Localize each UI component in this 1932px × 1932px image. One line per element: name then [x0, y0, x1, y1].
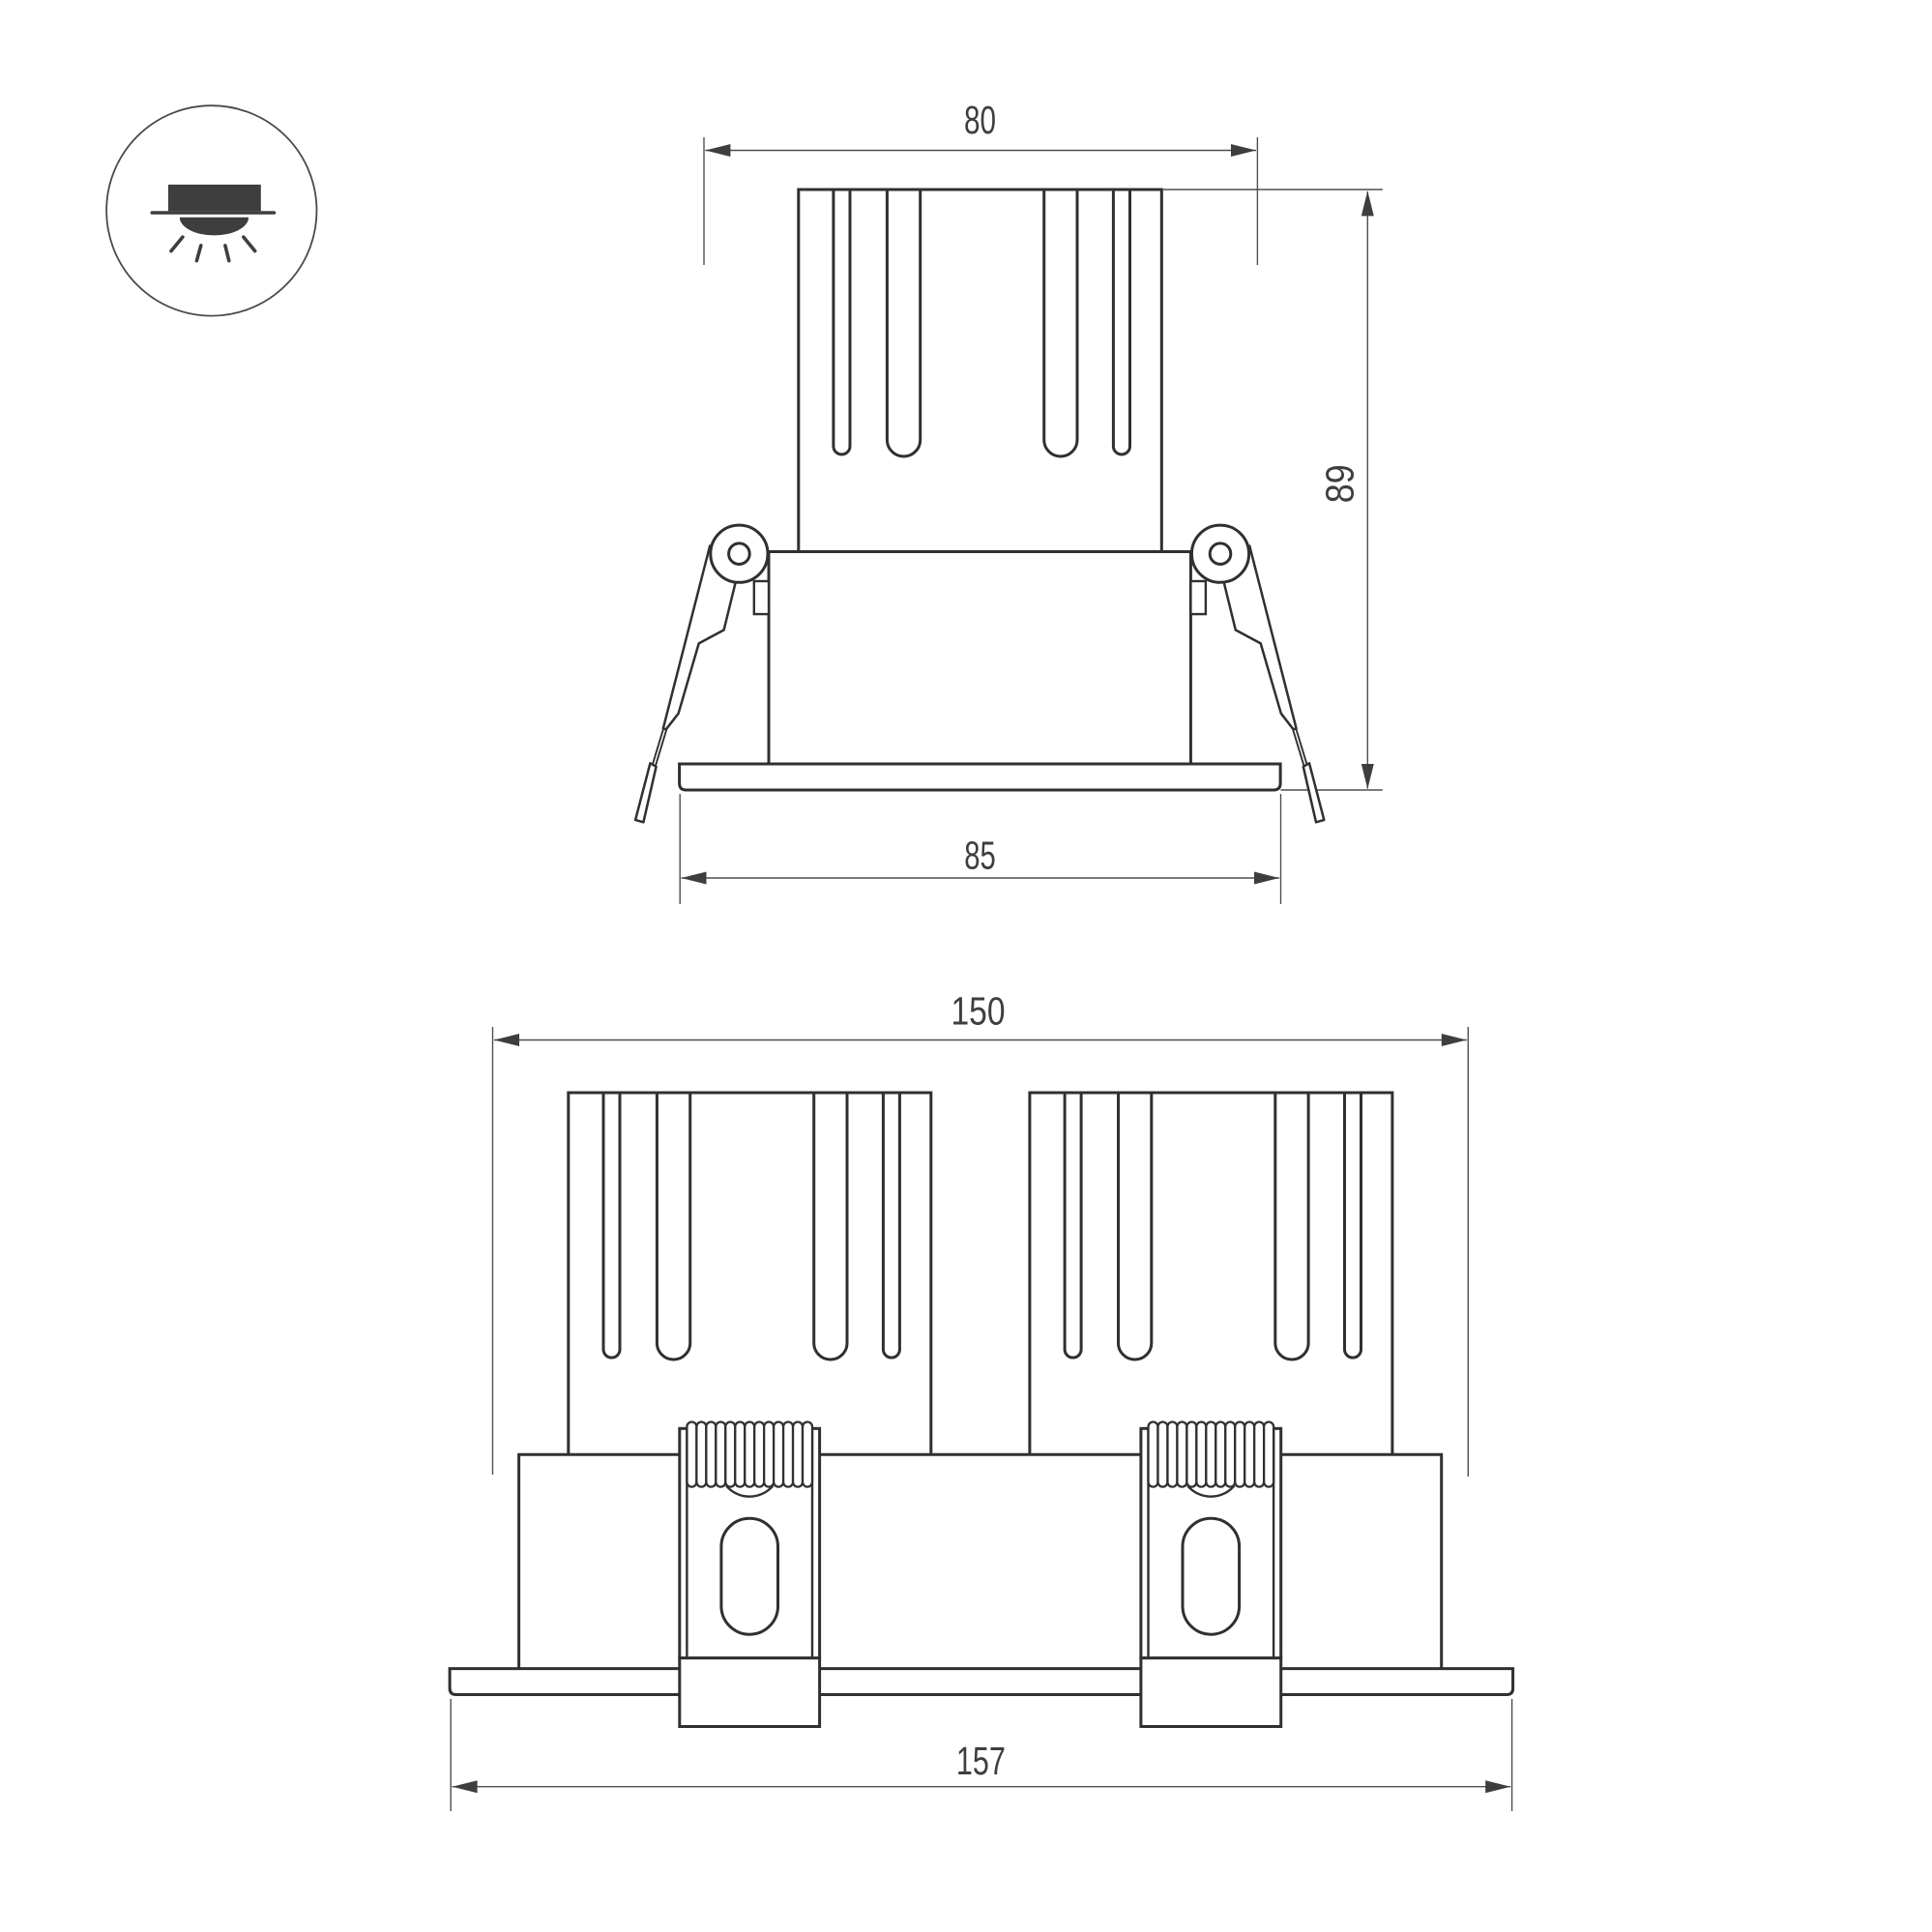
- svg-text:80: 80: [964, 98, 996, 142]
- svg-text:150: 150: [951, 988, 1006, 1033]
- svg-text:157: 157: [956, 1739, 1006, 1783]
- svg-text:89: 89: [1318, 464, 1362, 503]
- svg-text:85: 85: [964, 834, 996, 878]
